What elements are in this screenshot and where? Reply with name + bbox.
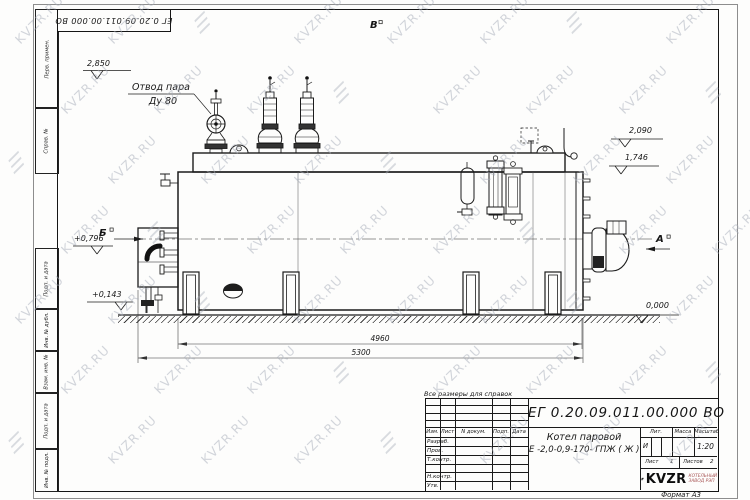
tb-header-data: Дата <box>510 429 528 435</box>
sample-cooler <box>457 162 474 215</box>
tb-product-name-line2: Е -2,0-0,9-170- ГПЖ ( Ж ) <box>529 445 639 455</box>
tb-doc-number: ЕГ 0.20.09.011.00.000 ВО <box>528 405 717 421</box>
view-mark-v <box>379 21 382 24</box>
elevation-marker-2850 <box>83 71 131 80</box>
dimension-label-4960: 4960 <box>370 334 389 343</box>
elevation-marker-2090 <box>611 139 663 147</box>
brand-name: KVZR <box>646 472 687 487</box>
company-logo: KVZR КОТЕЛЬНЫЙ ЗАВОД РЭП <box>641 469 717 489</box>
tb-sheets-total: 2 <box>710 459 714 465</box>
tb-row-razrab: Разраб. <box>427 439 449 445</box>
elevation-marker-0000 <box>631 315 679 323</box>
lifting-lug-left <box>230 145 248 153</box>
blowdown-piping <box>141 287 162 313</box>
safety-valve-1 <box>257 76 283 153</box>
tb-header-dokum: N докум. <box>455 429 492 435</box>
elevation-label-0143: +0,143 <box>92 290 122 299</box>
tb-sheet-label: Лист <box>645 459 658 465</box>
view-label-a: А <box>655 234 664 245</box>
format-label: Формат А3 <box>651 491 711 499</box>
view-label-b: Б <box>99 228 107 239</box>
tb-header-list: Лист <box>440 429 455 435</box>
elevation-marker-1746 <box>609 166 659 174</box>
tb-lit-value: И <box>640 442 651 450</box>
tb-sheets-label: Листов <box>683 459 703 465</box>
manhole <box>224 284 243 298</box>
tb-product-name-line1: Котел паровой <box>529 432 639 443</box>
callout-steam-outlet-line2: Ду 80 <box>148 96 177 107</box>
brand-sub-line2: ЗАВОД РЭП <box>688 479 717 484</box>
support-legs <box>183 272 561 314</box>
tb-mass-label: Масса <box>672 429 694 435</box>
safety-valve-2 <box>294 76 320 153</box>
tb-scale-value: 1:20 <box>694 442 717 451</box>
tb-lit-label: Лит. <box>640 429 672 435</box>
tb-header-podp: Подп. <box>492 429 510 435</box>
tb-header-izm: Изм. <box>425 429 440 435</box>
steam-outlet-valve <box>205 89 227 153</box>
elevation-marker-0143 <box>87 302 133 310</box>
tb-row-utv: Утв. <box>427 483 439 489</box>
view-label-v: В <box>370 20 378 31</box>
burner-assembly <box>583 221 629 272</box>
hook-pipe <box>564 128 577 159</box>
tb-row-nkontr: Н.контр. <box>427 474 452 480</box>
dimension-label-5300: 5300 <box>351 348 370 357</box>
front-smokebox <box>138 228 178 287</box>
elevation-label-1746: 1,746 <box>625 153 648 162</box>
water-level-gauge-2 <box>504 162 522 225</box>
callout-steam-outlet-line1: Отвод пара <box>132 82 190 93</box>
elevation-label-2090: 2,090 <box>629 126 652 135</box>
kvzr-coil-icon <box>641 472 644 486</box>
water-level-gauge-1 <box>487 156 504 219</box>
elevation-label-0000: 0,000 <box>646 301 669 310</box>
elevation-label-2850: 2,850 <box>87 59 110 68</box>
tb-scale-label: Масштаб <box>694 429 717 435</box>
angle-valve-top-left <box>160 174 178 186</box>
tb-sheet-no: 1 <box>670 459 674 465</box>
lifting-lug-right <box>537 146 553 153</box>
elevation-marker-0796 <box>73 246 113 254</box>
left-wall-nozzles <box>160 231 178 274</box>
reference-note: Все размеры для справок <box>424 390 512 398</box>
drawing-sheet: Перв. примен. Справ. № Подп. и дата Инв.… <box>0 0 750 500</box>
tb-row-tkontr: Т.контр. <box>427 457 451 463</box>
tb-row-prov: Пров. <box>427 448 443 454</box>
